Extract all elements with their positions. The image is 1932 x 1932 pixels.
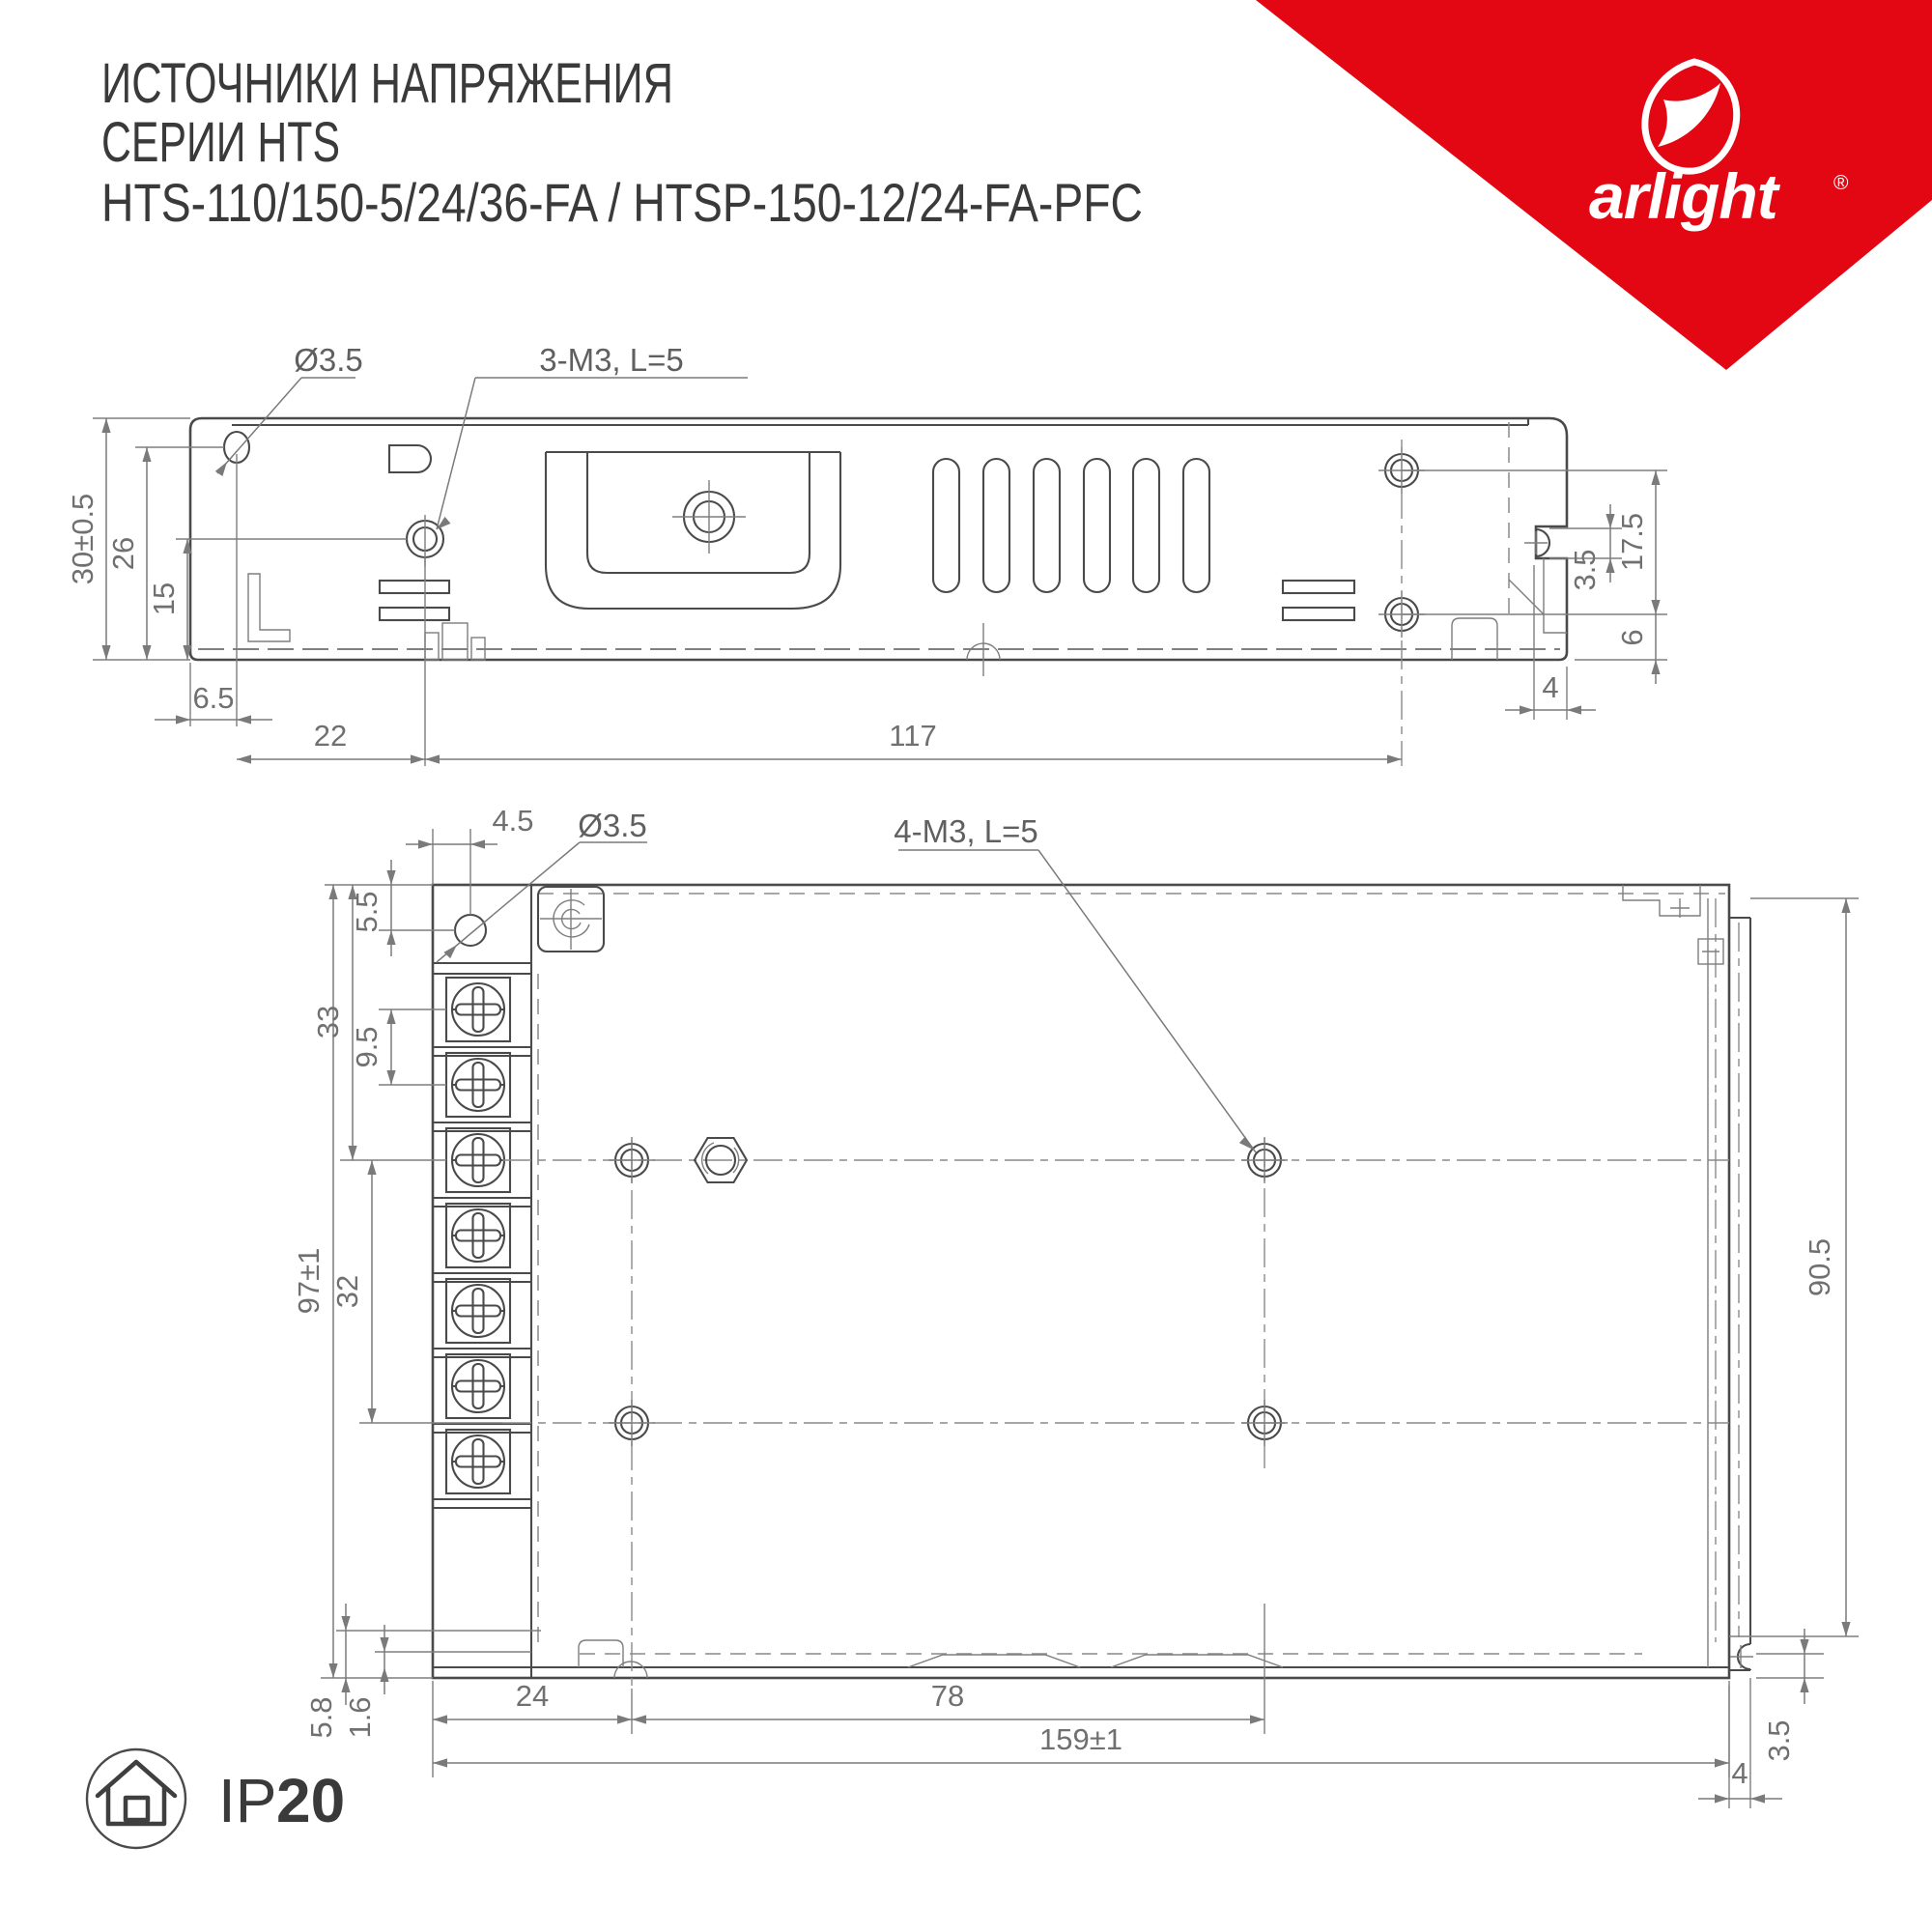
dim-6-5: 6.5: [192, 681, 234, 715]
registered-mark: ®: [1833, 172, 1849, 194]
ip-rating: 20: [276, 1766, 345, 1835]
dim-78: 78: [931, 1679, 964, 1713]
dim-33: 33: [311, 1006, 345, 1038]
dim-3-5-bottom: 3.5: [1762, 1719, 1796, 1761]
label-screw-note-bottom: 4-M3, L=5: [894, 813, 1038, 849]
ip-text: IP: [218, 1766, 276, 1835]
dim-26: 26: [106, 537, 140, 570]
page-title-line1: ИСТОЧНИКИ НАПРЯЖЕНИЯ: [101, 52, 673, 115]
page-title-line3: HTS-110/150-5/24/36-FA / HTSP-150-12/24-…: [101, 172, 1143, 233]
dim-1-6: 1.6: [343, 1696, 377, 1738]
datasheet-page: ИСТОЧНИКИ НАПРЯЖЕНИЯ СЕРИИ HTS HTS-110/1…: [0, 0, 1932, 1932]
dim-4-bottom: 4: [1731, 1756, 1747, 1790]
dim-3-5-side: 3.5: [1568, 549, 1602, 590]
dim-90-5: 90.5: [1803, 1238, 1836, 1296]
dim-5-5: 5.5: [350, 891, 384, 932]
dim-22: 22: [314, 719, 347, 753]
dim-15: 15: [147, 582, 181, 615]
dim-159: 159±1: [1039, 1722, 1122, 1756]
datasheet-drawing: ИСТОЧНИКИ НАПРЯЖЕНИЯ СЕРИИ HTS HTS-110/1…: [0, 0, 1932, 1932]
dim-4-side: 4: [1542, 670, 1558, 704]
label-hole-dia-bottom: Ø3.5: [578, 808, 647, 843]
brand-wordmark: arlight: [1589, 160, 1781, 232]
dim-97: 97±1: [292, 1248, 326, 1315]
label-hole-dia-side: Ø3.5: [294, 342, 363, 378]
dim-4-5: 4.5: [492, 804, 533, 838]
dim-5-8: 5.8: [304, 1696, 338, 1738]
dim-6: 6: [1615, 629, 1649, 645]
dim-24: 24: [516, 1679, 549, 1713]
label-screw-note-side: 3-M3, L=5: [539, 342, 684, 378]
dim-9-5: 9.5: [350, 1026, 384, 1067]
dim-17-5: 17.5: [1615, 513, 1649, 571]
dim-117: 117: [889, 719, 936, 753]
dim-32: 32: [330, 1275, 364, 1308]
page-title-line2: СЕРИИ HTS: [101, 111, 340, 174]
dim-height-30: 30±0.5: [66, 494, 99, 585]
